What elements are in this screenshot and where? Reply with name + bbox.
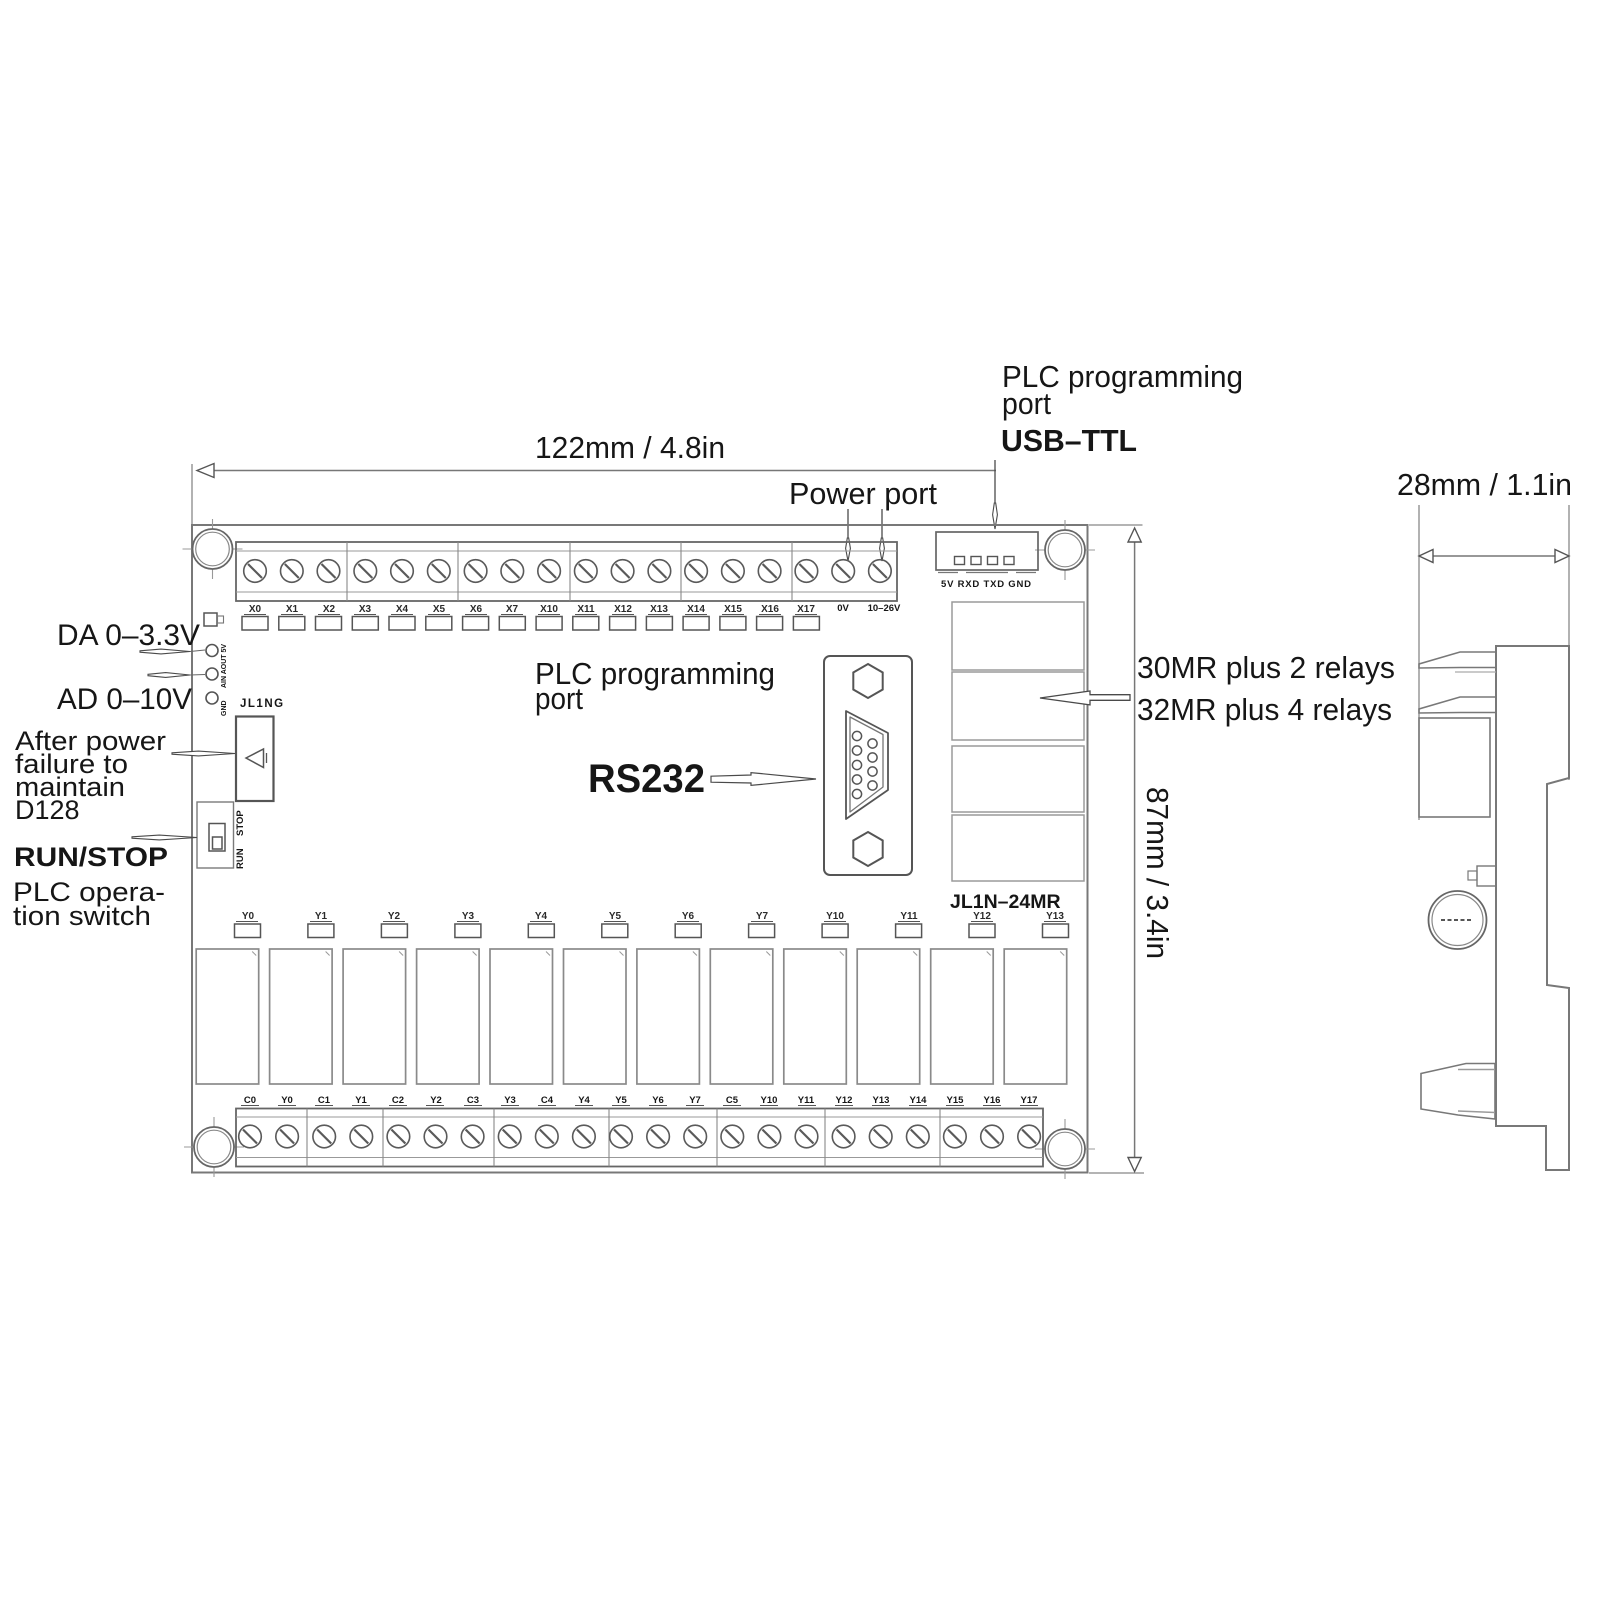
svg-text:C5: C5 xyxy=(726,1095,739,1106)
svg-text:122mm / 4.8in: 122mm / 4.8in xyxy=(535,430,725,465)
svg-text:Y4: Y4 xyxy=(578,1095,590,1106)
svg-text:X17: X17 xyxy=(797,604,815,615)
svg-text:Y17: Y17 xyxy=(1021,1095,1038,1106)
svg-text:X4: X4 xyxy=(396,604,409,615)
svg-text:Y0: Y0 xyxy=(281,1095,293,1106)
svg-text:JL1N–24MR: JL1N–24MR xyxy=(950,891,1061,913)
svg-text:Y10: Y10 xyxy=(761,1095,778,1106)
svg-text:AD 0–10V: AD 0–10V xyxy=(57,683,192,716)
svg-text:Y6: Y6 xyxy=(682,911,695,922)
svg-text:Y5: Y5 xyxy=(609,911,622,922)
svg-text:Power port: Power port xyxy=(789,476,937,511)
svg-text:Y13: Y13 xyxy=(873,1095,890,1106)
svg-text:RUN: RUN xyxy=(235,848,246,869)
svg-text:Y10: Y10 xyxy=(826,911,844,922)
svg-text:D128: D128 xyxy=(15,795,80,825)
svg-text:X7: X7 xyxy=(506,604,519,615)
svg-text:30MR plus 2 relays: 30MR plus 2 relays xyxy=(1137,650,1395,685)
svg-text:X10: X10 xyxy=(540,604,558,615)
svg-text:Y0: Y0 xyxy=(242,911,255,922)
svg-text:Y12: Y12 xyxy=(836,1095,853,1106)
svg-text:JL1NG: JL1NG xyxy=(240,698,285,710)
svg-text:USB–TTL: USB–TTL xyxy=(1001,423,1137,458)
svg-text:X5: X5 xyxy=(433,604,446,615)
svg-text:Y14: Y14 xyxy=(910,1095,928,1106)
svg-text:X1: X1 xyxy=(286,604,299,615)
svg-text:87mm / 3.4in: 87mm / 3.4in xyxy=(1140,787,1175,959)
svg-text:0V: 0V xyxy=(837,603,849,614)
svg-text:Y1: Y1 xyxy=(355,1095,367,1106)
svg-text:Y3: Y3 xyxy=(462,911,475,922)
svg-text:X2: X2 xyxy=(323,604,336,615)
svg-text:Y3: Y3 xyxy=(504,1095,516,1106)
svg-text:tion switch: tion switch xyxy=(13,901,151,931)
svg-text:X11: X11 xyxy=(577,604,595,615)
svg-text:DA 0–3.3V: DA 0–3.3V xyxy=(57,619,200,652)
svg-text:RS232: RS232 xyxy=(588,757,705,801)
svg-text:Y7: Y7 xyxy=(756,911,769,922)
svg-text:28mm / 1.1in: 28mm / 1.1in xyxy=(1397,467,1572,502)
svg-text:Y4: Y4 xyxy=(535,911,548,922)
svg-text:Y16: Y16 xyxy=(984,1095,1001,1106)
svg-text:STOP: STOP xyxy=(235,810,246,836)
svg-text:C1: C1 xyxy=(318,1095,331,1106)
svg-text:C3: C3 xyxy=(467,1095,479,1106)
svg-text:Y11: Y11 xyxy=(798,1095,815,1106)
svg-text:5V RXD TXD GND: 5V RXD TXD GND xyxy=(941,579,1031,590)
svg-text:32MR plus 4 relays: 32MR plus 4 relays xyxy=(1137,692,1392,727)
svg-text:C4: C4 xyxy=(541,1095,554,1106)
svg-text:X13: X13 xyxy=(650,604,668,615)
svg-text:Y15: Y15 xyxy=(947,1095,965,1106)
svg-text:X14: X14 xyxy=(687,604,705,615)
svg-text:AIN AOUT 5V: AIN AOUT 5V xyxy=(221,644,228,688)
svg-text:X15: X15 xyxy=(724,604,742,615)
svg-text:X6: X6 xyxy=(470,604,483,615)
svg-text:Y7: Y7 xyxy=(689,1095,701,1106)
svg-text:port: port xyxy=(1002,386,1051,421)
svg-text:port: port xyxy=(535,681,583,716)
svg-text:Y1: Y1 xyxy=(315,911,328,922)
svg-text:GND: GND xyxy=(221,700,228,716)
svg-text:10–26V: 10–26V xyxy=(868,603,901,614)
svg-text:Y5: Y5 xyxy=(615,1095,627,1106)
svg-text:X0: X0 xyxy=(249,604,262,615)
svg-text:X12: X12 xyxy=(614,604,632,615)
svg-text:C2: C2 xyxy=(392,1095,404,1106)
svg-text:C0: C0 xyxy=(244,1095,256,1106)
svg-text:Y6: Y6 xyxy=(652,1095,664,1106)
svg-text:Y11: Y11 xyxy=(900,911,918,922)
svg-text:Y2: Y2 xyxy=(388,911,401,922)
svg-text:X16: X16 xyxy=(761,604,779,615)
svg-text:X3: X3 xyxy=(359,604,372,615)
svg-text:RUN/STOP: RUN/STOP xyxy=(14,842,168,872)
svg-text:Y2: Y2 xyxy=(430,1095,442,1106)
